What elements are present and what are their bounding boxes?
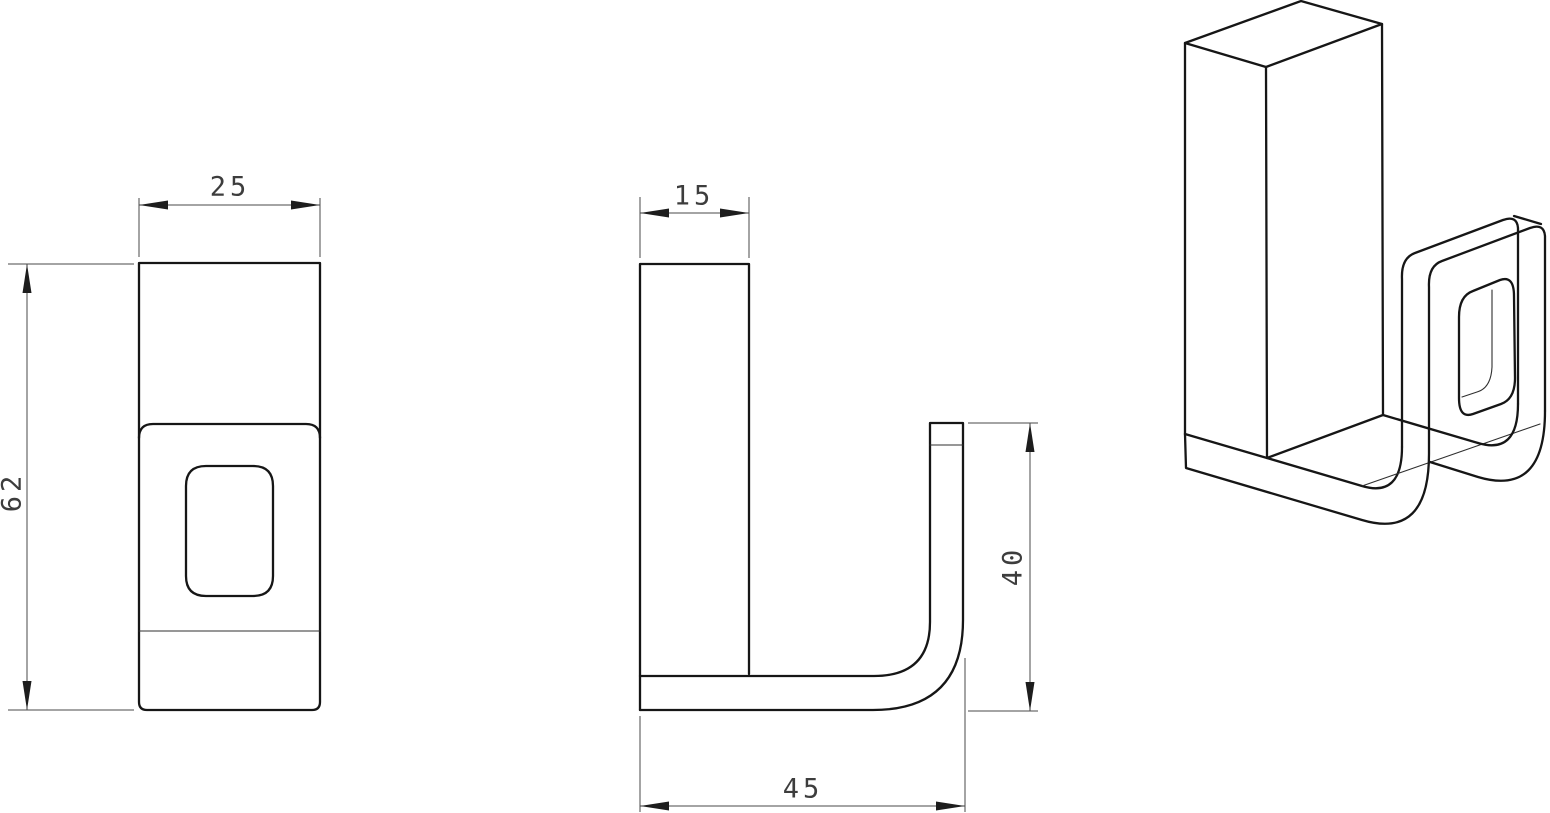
dim-label-side-depth: 45 — [783, 774, 824, 805]
front-width-dimension — [139, 198, 320, 257]
iso-right-joint — [1267, 415, 1478, 458]
side-leg-outline — [640, 264, 749, 710]
front-view — [8, 198, 320, 710]
front-flange-top-edge — [139, 424, 320, 438]
iso-slot-hole-back-edges — [1462, 290, 1492, 397]
side-j-profile — [640, 423, 963, 710]
side-view — [640, 197, 1038, 812]
front-slot-hole — [186, 466, 273, 596]
dim-label-side-thickness: 15 — [674, 181, 715, 212]
iso-column-top-face — [1185, 1, 1382, 67]
iso-flange-top-end-edge — [1514, 216, 1541, 224]
technical-drawing-sheet: 25 62 15 40 45 — [0, 0, 1550, 813]
dim-label-front-height: 62 — [0, 472, 28, 513]
iso-slot-hole — [1459, 279, 1515, 415]
iso-column-edges — [1185, 24, 1383, 458]
dim-label-side-hook-height: 40 — [998, 546, 1029, 587]
drawing-linework — [0, 0, 1550, 813]
iso-left-joint-and-inner-bend — [1185, 434, 1402, 488]
dim-label-front-width: 25 — [210, 172, 251, 203]
front-outline — [139, 263, 320, 710]
isometric-view — [1185, 1, 1545, 524]
